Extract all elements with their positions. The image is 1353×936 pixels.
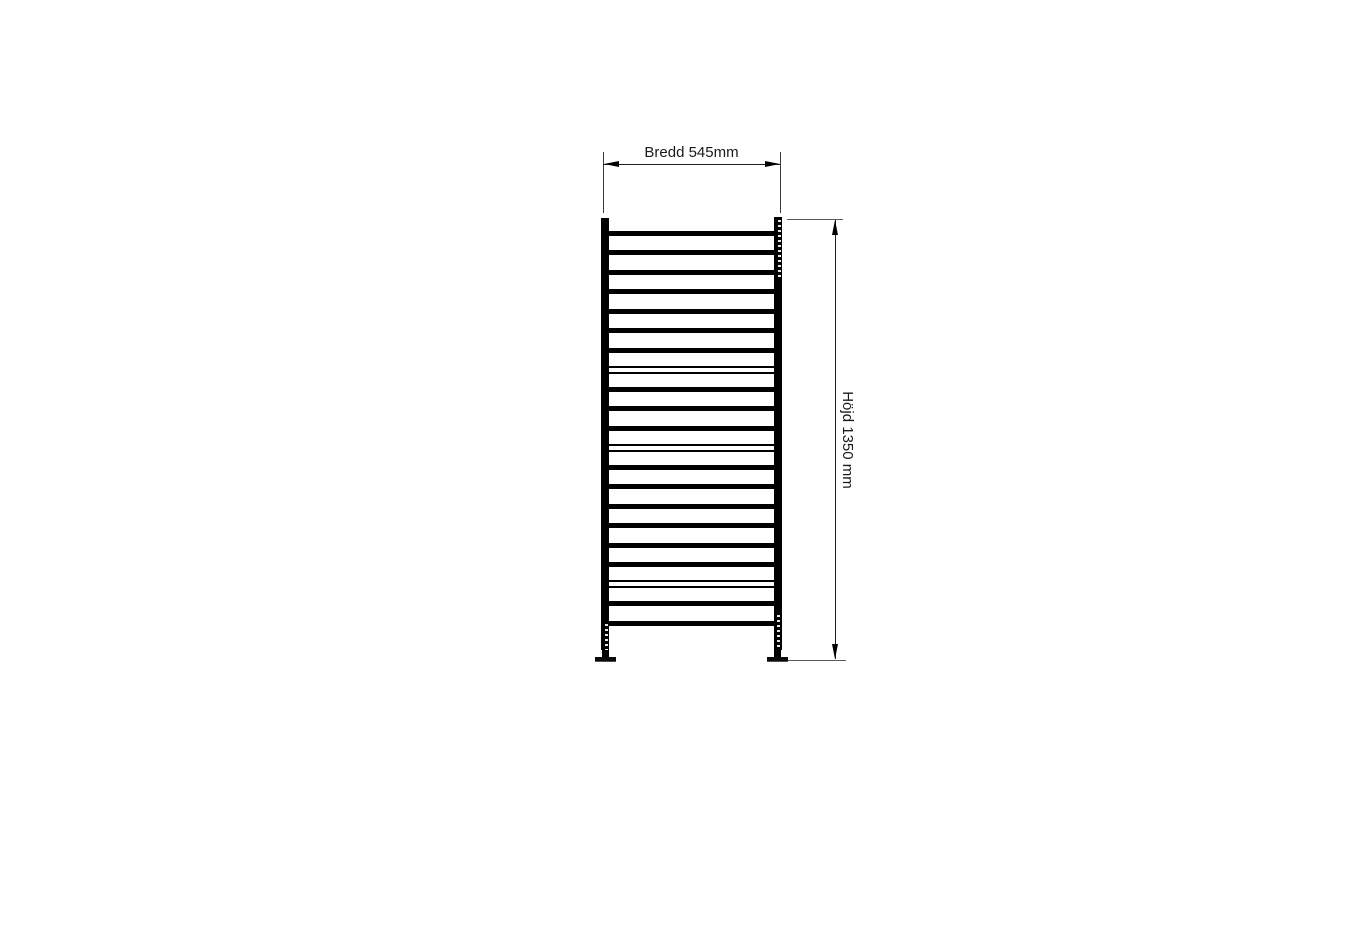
- right-foot-stem: [774, 650, 781, 657]
- rung: [609, 270, 774, 275]
- rung: [609, 543, 774, 548]
- height-dimension-label: Höjd 1350 mm: [839, 391, 855, 489]
- left-rail: [601, 218, 609, 650]
- drawing-canvas: Bredd 545mm Höjd 1350 mm: [0, 0, 1353, 936]
- rung: [609, 250, 774, 255]
- height-dimension-line: [835, 220, 836, 659]
- rung: [609, 406, 774, 411]
- height-extension-line-bottom: [788, 660, 846, 661]
- right-rail-centerline-dashes: [777, 615, 780, 648]
- rung: [609, 601, 774, 606]
- rung: [609, 523, 774, 528]
- width-dimension-line: [603, 164, 780, 165]
- right-rail: [774, 217, 782, 650]
- right-rail-centerline-dashes: [778, 220, 781, 280]
- width-dimension-label: Bredd 545mm: [603, 145, 780, 161]
- rung: [609, 309, 774, 314]
- rung: [609, 231, 774, 236]
- rung: [609, 562, 774, 567]
- rung: [609, 621, 774, 626]
- left-rail-centerline-dashes: [605, 624, 608, 650]
- right-foot-base: [767, 657, 788, 662]
- rung: [609, 387, 774, 392]
- rung: [609, 328, 774, 333]
- rung: [609, 484, 774, 489]
- rung: [609, 426, 774, 431]
- rung: [609, 504, 774, 509]
- rung: [609, 348, 774, 353]
- arrowhead-left-icon: [604, 161, 619, 167]
- arrowhead-up-icon: [832, 220, 838, 235]
- arrowhead-down-icon: [832, 644, 838, 659]
- rung: [609, 289, 774, 294]
- rung: [609, 465, 774, 470]
- rung: [609, 366, 774, 374]
- left-foot-stem: [602, 650, 609, 657]
- arrowhead-right-icon: [765, 161, 780, 167]
- rung: [609, 580, 774, 588]
- rung: [609, 444, 774, 452]
- left-foot-base: [595, 657, 616, 662]
- width-extension-line-right: [780, 152, 781, 213]
